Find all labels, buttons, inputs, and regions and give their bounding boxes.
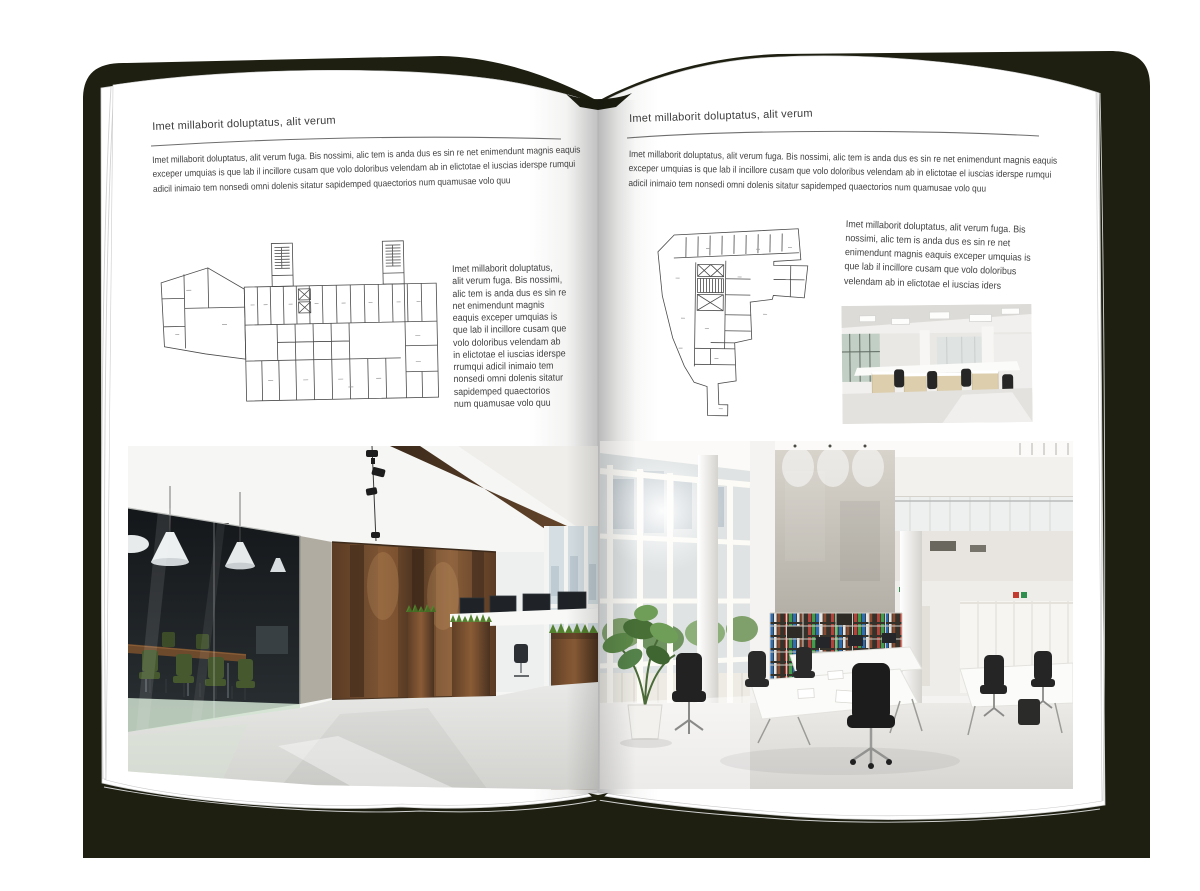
office-photo-large <box>600 441 1073 789</box>
brochure-mockup-scene: Imet millaborit doluptatus, alit verum I… <box>0 0 1200 891</box>
office-photo-left <box>128 446 598 790</box>
right-side-paragraph: Imet millaborit doluptatus, alit verum f… <box>844 218 1041 295</box>
left-side-paragraph: Imet millaborit doluptatus, alit verum f… <box>452 262 568 411</box>
floor-plan-right <box>644 218 844 422</box>
concrete-wall <box>775 441 895 616</box>
plan-room-labels <box>674 246 792 410</box>
right-intro-paragraph: Imet millaborit doluptatus, alit verum f… <box>628 147 1066 197</box>
floor-plan-left <box>145 225 452 421</box>
plan-room-labels <box>174 285 422 390</box>
office-photo-small <box>841 304 1032 424</box>
